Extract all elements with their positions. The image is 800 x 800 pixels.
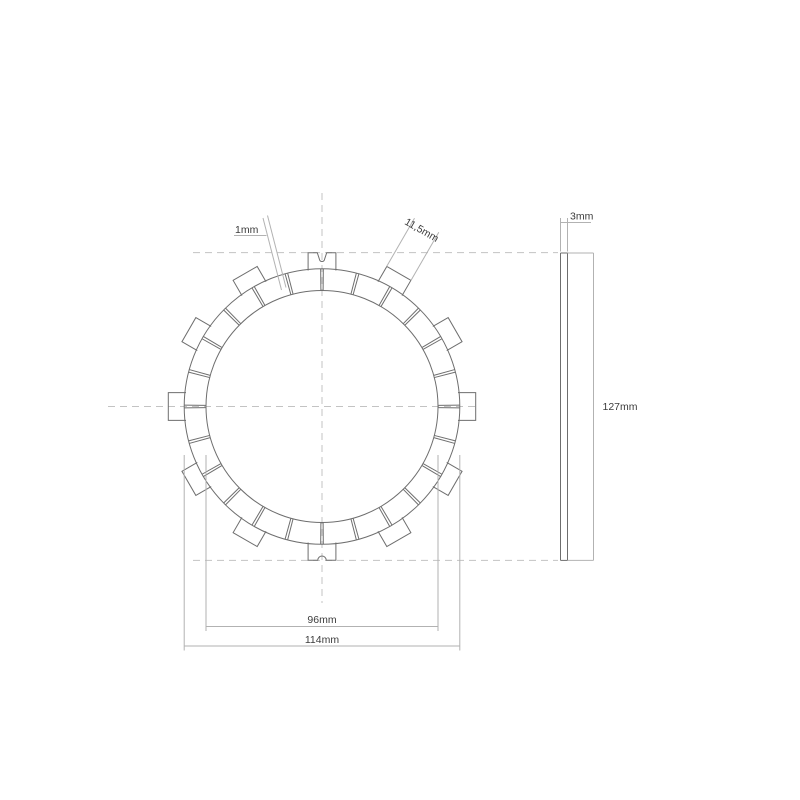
leader-line-1mm-a <box>263 218 282 290</box>
pad-groove-line <box>252 288 263 307</box>
front-view-clutch-plate <box>168 253 475 560</box>
pad-groove-line <box>226 308 241 324</box>
dim-label-friction-inner-diameter: 96mm <box>307 614 336 626</box>
dimension-lines <box>184 216 593 651</box>
pad-groove-line <box>403 308 418 324</box>
pad-groove-line <box>224 488 240 503</box>
pad-groove-line <box>405 310 421 325</box>
drive-tab <box>433 462 462 495</box>
pad-groove-line <box>254 287 265 306</box>
pad-groove-line <box>379 287 390 306</box>
pad-groove-line <box>405 488 421 503</box>
pad-groove-line <box>202 339 221 350</box>
dim-label-groove-width: 1mm <box>235 224 259 236</box>
pad-groove-line <box>379 508 390 527</box>
drive-tab <box>433 318 462 351</box>
dim-label-friction-outer-diameter: 114mm <box>305 634 339 646</box>
pad-groove-line <box>423 339 442 350</box>
pad-groove-line <box>381 506 392 525</box>
drive-tabs <box>168 253 475 560</box>
pad-groove-line <box>422 336 441 347</box>
pad-groove-line <box>224 310 240 325</box>
pad-groove-line <box>226 489 241 505</box>
drive-tab <box>378 266 411 295</box>
pad-groove-line <box>403 489 418 505</box>
drive-tab <box>378 517 411 546</box>
friction-pad-grooves <box>184 269 460 545</box>
pad-groove-line <box>254 508 265 527</box>
pad-groove-line <box>203 336 222 347</box>
drive-tab <box>233 517 266 546</box>
dim-label-tab-width: 11,5mm <box>402 216 440 245</box>
friction-pad-outer-circle <box>184 269 460 545</box>
pad-groove-line <box>423 464 442 475</box>
drive-tab <box>233 266 266 295</box>
pad-groove-line <box>202 464 221 475</box>
centerlines <box>108 193 558 603</box>
dim-label-thickness: 3mm <box>570 211 594 223</box>
clutch-plate-technical-drawing: 1mm 11,5mm 3mm 127mm 96mm 114mm <box>0 0 800 800</box>
pad-groove-line <box>252 506 263 525</box>
pad-groove-line <box>381 288 392 307</box>
dim-label-outer-diameter: 127mm <box>603 401 638 413</box>
drive-tab <box>182 318 211 351</box>
drive-tab <box>182 462 211 495</box>
side-view-plate <box>561 253 568 560</box>
